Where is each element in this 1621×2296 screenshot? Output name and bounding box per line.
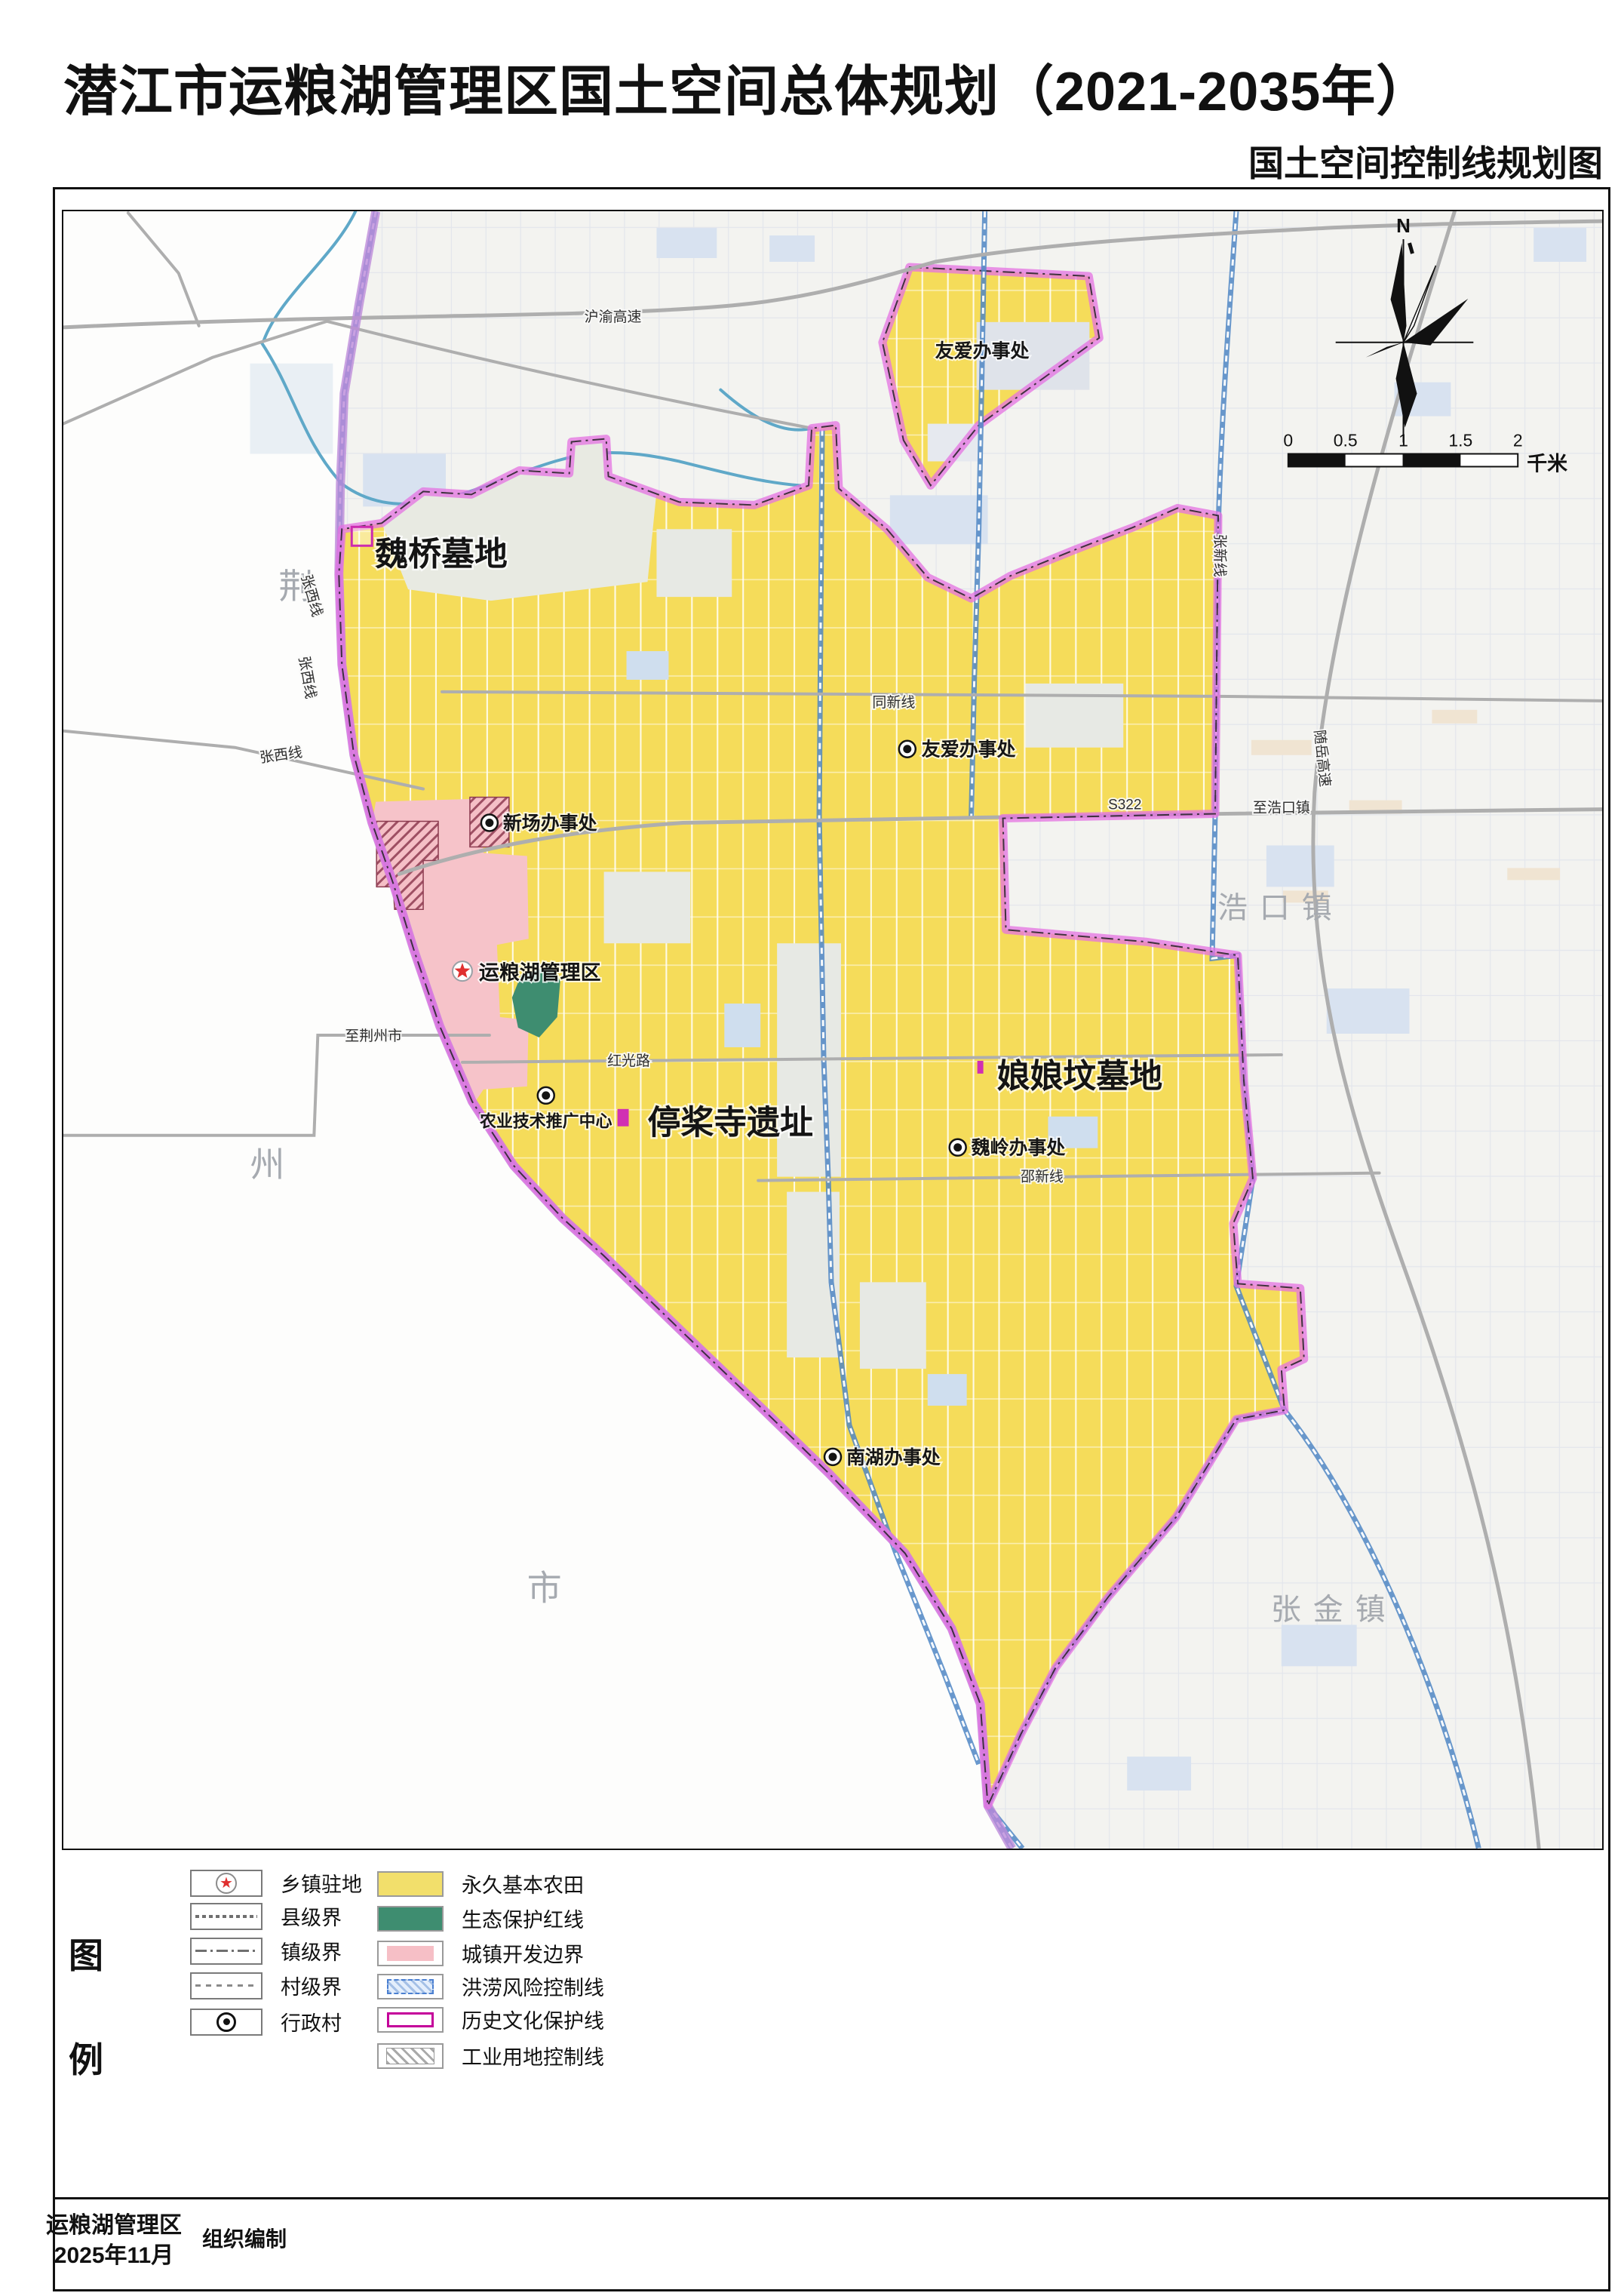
heritage-line-swatch <box>377 2007 444 2033</box>
industrial-line-swatch <box>377 2043 444 2069</box>
map-label: 1.5 <box>1448 431 1472 450</box>
legend-label: 乡镇驻地 <box>281 1868 362 1898</box>
lake-patch <box>250 364 333 454</box>
circled-dot-icon <box>216 2012 236 2032</box>
admin-village-symbol <box>190 2009 262 2036</box>
legend-label: 永久基本农田 <box>462 1869 584 1898</box>
map-label: 州 <box>250 1145 285 1185</box>
map-label: 0 <box>1283 431 1293 450</box>
plan-sheet: 潜江市运粮湖管理区国土空间总体规划（2021-2035年） 国土空间控制线规划图 <box>0 0 1621 2296</box>
town-boundary-symbol <box>190 1938 262 1965</box>
map-label: 魏桥墓地 <box>375 536 508 573</box>
map-label: 0.5 <box>1334 431 1358 450</box>
map-label: 2 <box>1513 431 1523 450</box>
legend-item-town-seat: ★ 乡镇驻地 <box>190 1868 362 1898</box>
legend-label: 县级界 <box>281 1901 342 1931</box>
county-boundary-symbol <box>190 1903 262 1930</box>
legend-heading-1: 图 <box>66 1929 106 1978</box>
map-label: 红光路 <box>607 1053 650 1069</box>
map-frame: 魏桥墓地停桨寺遗址娘娘坟墓地友爱办事处友爱办事处新场办事处魏岭办事处南湖办事处农… <box>62 210 1604 1850</box>
legend-heading-2: 例 <box>66 2033 106 2082</box>
village-boundary-symbol <box>190 1972 262 1999</box>
legend-item-urban-boundary: 城镇开发边界 <box>377 1938 584 1968</box>
page-subtitle: 国土空间控制线规划图 <box>1248 134 1603 186</box>
legend-item-village-boundary: 村级界 <box>190 1971 342 2000</box>
map-label: 魏岭办事处 <box>972 1137 1066 1159</box>
map-label: 农业技术推广中心 <box>479 1112 612 1131</box>
footer-date: 2025年11月 <box>42 2236 186 2270</box>
flood-control-swatch <box>377 1974 444 1999</box>
town-seat-star-icon <box>453 961 472 981</box>
map-label: 同新线 <box>872 694 915 711</box>
legend-label: 镇级界 <box>281 1936 342 1966</box>
red-star-icon: ★ <box>220 1876 233 1891</box>
legend-item-permanent-farmland: 永久基本农田 <box>377 1869 584 1898</box>
star-circle-icon: ★ <box>216 1873 237 1894</box>
map-label: 友爱办事处 <box>935 341 1030 362</box>
map-label: 千米 <box>1527 452 1567 475</box>
legend-label: 工业用地控制线 <box>462 2041 604 2070</box>
footer-organization: 运粮湖管理区 <box>42 2206 186 2239</box>
dashed-line-icon <box>195 1984 257 1987</box>
map-label: 娘娘坟墓地 <box>997 1058 1163 1095</box>
footer-divider <box>53 2197 1610 2199</box>
legend-label: 行政村 <box>281 2007 342 2036</box>
legend-label: 历史文化保护线 <box>462 2005 604 2034</box>
map-label: 张新线 <box>1211 534 1228 577</box>
legend-item-town-boundary: 镇级界 <box>190 1936 342 1966</box>
map-label: 浩口镇 <box>1217 891 1344 924</box>
eco-redline-swatch <box>377 1906 444 1932</box>
town-seat-symbol: ★ <box>190 1870 262 1897</box>
map-label: 至浩口镇 <box>1253 800 1310 816</box>
farmland-swatch <box>377 1871 444 1897</box>
map-label: 邵新线 <box>1021 1169 1064 1185</box>
legend-label: 村级界 <box>281 1971 342 2000</box>
legend-item-county-boundary: 县级界 <box>190 1901 342 1931</box>
scale-bar <box>1288 453 1518 466</box>
legend-item-flood-control: 洪涝风险控制线 <box>377 1972 604 2001</box>
urban-boundary-swatch <box>377 1941 444 1966</box>
dense-dash-line-icon <box>195 1915 257 1918</box>
legend-label: 洪涝风险控制线 <box>462 1972 604 2001</box>
dash-dot-line-icon <box>195 1950 257 1952</box>
map-label: N <box>1396 216 1411 237</box>
map-label: 至荆州市 <box>345 1028 402 1044</box>
legend-label: 城镇开发边界 <box>462 1938 584 1968</box>
legend-item-admin-village: 行政村 <box>190 2007 342 2036</box>
map-label: 南湖办事处 <box>846 1447 941 1468</box>
legend-item-eco-redline: 生态保护红线 <box>377 1904 584 1933</box>
map-label: 友爱办事处 <box>922 739 1016 761</box>
legend-item-industrial-line: 工业用地控制线 <box>377 2041 604 2070</box>
planning-map: 魏桥墓地停桨寺遗址娘娘坟墓地友爱办事处友爱办事处新场办事处魏岭办事处南湖办事处农… <box>63 211 1602 1849</box>
footer-credit: 组织编制 <box>202 2223 287 2253</box>
map-label: 新场办事处 <box>503 813 597 834</box>
map-label: 1 <box>1398 431 1408 450</box>
page-title: 潜江市运粮湖管理区国土空间总体规划（2021-2035年） <box>63 47 1431 126</box>
legend-label: 生态保护红线 <box>462 1904 584 1933</box>
map-label: 沪渝高速 <box>585 309 642 325</box>
map-label: 市 <box>527 1569 562 1608</box>
map-label: S322 <box>1108 798 1141 813</box>
legend-item-heritage-line: 历史文化保护线 <box>377 2005 604 2034</box>
map-label: 张金镇 <box>1271 1593 1398 1626</box>
map-label: 停桨寺遗址 <box>647 1105 813 1142</box>
map-label: 运粮湖管理区 <box>479 961 601 984</box>
